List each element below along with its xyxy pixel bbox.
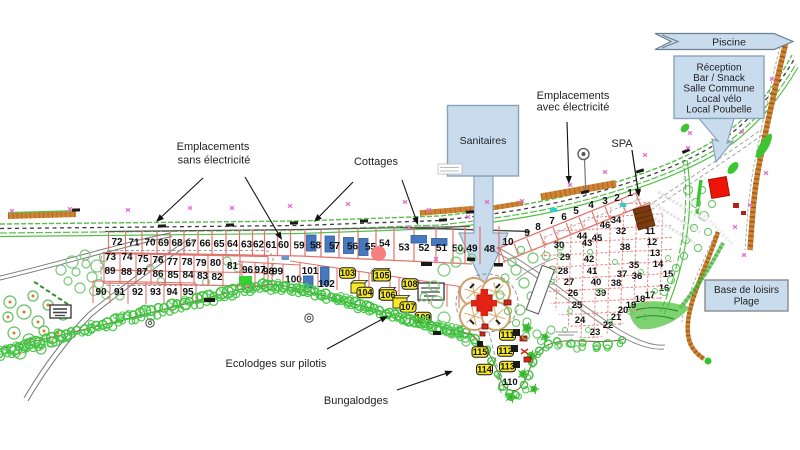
svg-text:73: 73	[105, 252, 117, 263]
svg-text:7: 7	[549, 216, 555, 227]
svg-text:74: 74	[121, 252, 133, 263]
svg-text:27: 27	[564, 277, 575, 288]
svg-text:2: 2	[614, 193, 620, 204]
svg-text:SPA: SPA	[611, 138, 633, 150]
svg-text:88: 88	[121, 267, 133, 278]
svg-text:28: 28	[558, 266, 569, 277]
svg-text:68: 68	[171, 238, 183, 249]
svg-text:4: 4	[588, 200, 594, 211]
svg-text:78: 78	[181, 257, 193, 268]
svg-text:Plage: Plage	[734, 297, 760, 308]
svg-text:75: 75	[137, 254, 149, 265]
svg-text:105: 105	[374, 271, 389, 281]
svg-text:Emplacements: Emplacements	[537, 90, 610, 102]
svg-text:86: 86	[152, 269, 164, 280]
svg-text:93: 93	[150, 287, 162, 298]
svg-text:48: 48	[484, 244, 496, 255]
svg-text:35: 35	[629, 260, 640, 271]
svg-text:112: 112	[498, 346, 513, 356]
svg-text:107: 107	[400, 302, 415, 312]
svg-text:53: 53	[398, 242, 410, 253]
svg-text:Réception: Réception	[696, 63, 741, 74]
svg-text:76: 76	[152, 255, 164, 266]
svg-text:18: 18	[635, 294, 646, 305]
svg-text:Cottages: Cottages	[354, 156, 399, 168]
svg-text:51: 51	[436, 243, 448, 254]
svg-text:12: 12	[647, 237, 658, 248]
svg-text:5: 5	[573, 206, 579, 217]
svg-text:81: 81	[227, 261, 239, 272]
svg-text:82: 82	[211, 272, 223, 283]
svg-text:45: 45	[592, 233, 603, 244]
svg-text:36: 36	[632, 271, 643, 282]
svg-text:57: 57	[329, 241, 341, 252]
svg-text:103: 103	[340, 268, 355, 278]
svg-text:22: 22	[603, 320, 614, 331]
svg-text:Bungalodges: Bungalodges	[324, 395, 389, 407]
svg-text:101: 101	[302, 266, 319, 277]
svg-text:52: 52	[418, 243, 430, 254]
svg-text:59: 59	[293, 240, 305, 251]
svg-text:32: 32	[616, 226, 627, 237]
svg-text:43: 43	[582, 238, 593, 249]
svg-text:67: 67	[185, 238, 197, 249]
svg-text:3: 3	[602, 196, 608, 207]
svg-text:41: 41	[587, 266, 598, 277]
svg-text:115: 115	[473, 347, 488, 357]
svg-text:Piscine: Piscine	[712, 37, 746, 49]
svg-text:62: 62	[253, 240, 265, 251]
svg-text:Bar / Snack: Bar / Snack	[693, 73, 746, 84]
svg-text:30: 30	[554, 240, 565, 251]
svg-text:9: 9	[524, 228, 530, 239]
svg-text:77: 77	[167, 257, 179, 268]
svg-text:66: 66	[199, 239, 211, 250]
svg-text:80: 80	[210, 258, 222, 269]
svg-text:69: 69	[158, 238, 170, 249]
svg-text:110: 110	[502, 377, 517, 388]
svg-text:92: 92	[132, 287, 144, 298]
svg-text:83: 83	[197, 271, 209, 282]
svg-text:85: 85	[167, 270, 179, 281]
svg-text:102: 102	[318, 279, 335, 290]
svg-text:89: 89	[104, 266, 116, 277]
svg-text:79: 79	[195, 258, 207, 269]
svg-text:111: 111	[500, 330, 514, 340]
svg-text:61: 61	[265, 240, 277, 251]
svg-text:26: 26	[568, 288, 579, 299]
svg-text:10: 10	[502, 237, 514, 248]
svg-text:Sanitaires: Sanitaires	[460, 135, 507, 147]
svg-text:113: 113	[500, 362, 515, 372]
svg-text:sans électricité: sans électricité	[178, 155, 251, 167]
svg-text:13: 13	[650, 248, 661, 259]
svg-text:24: 24	[575, 315, 586, 326]
svg-text:60: 60	[278, 240, 290, 251]
svg-text:64: 64	[227, 239, 239, 250]
svg-text:96: 96	[242, 265, 254, 276]
svg-text:34: 34	[611, 215, 622, 226]
svg-text:65: 65	[213, 239, 225, 250]
svg-text:Local vélo: Local vélo	[696, 94, 741, 105]
svg-text:63: 63	[241, 239, 253, 250]
svg-text:25: 25	[572, 300, 583, 311]
svg-text:71: 71	[128, 237, 140, 248]
svg-text:70: 70	[144, 238, 156, 249]
svg-text:23: 23	[590, 327, 601, 338]
svg-text:90: 90	[95, 287, 107, 298]
svg-text:6: 6	[561, 212, 567, 223]
svg-text:46: 46	[600, 220, 611, 231]
svg-text:17: 17	[645, 290, 656, 301]
svg-text:58: 58	[310, 241, 322, 252]
svg-text:87: 87	[136, 267, 148, 278]
svg-text:91: 91	[114, 287, 126, 298]
svg-text:Emplacements: Emplacements	[177, 141, 250, 153]
svg-text:104: 104	[357, 288, 372, 298]
svg-text:114: 114	[477, 365, 492, 375]
svg-text:Salle Commune: Salle Commune	[683, 84, 755, 95]
svg-text:108: 108	[402, 279, 417, 289]
svg-text:8: 8	[535, 222, 541, 233]
svg-text:99: 99	[272, 267, 284, 278]
svg-text:84: 84	[182, 270, 194, 281]
svg-text:Base de loisirs: Base de loisirs	[714, 285, 779, 296]
svg-text:38: 38	[620, 242, 631, 253]
svg-text:56: 56	[347, 241, 359, 252]
svg-text:42: 42	[584, 254, 595, 265]
svg-text:avec électricité: avec électricité	[537, 102, 610, 114]
svg-text:Ecolodges sur pilotis: Ecolodges sur pilotis	[226, 358, 327, 370]
svg-text:Local Poubelle: Local Poubelle	[686, 105, 752, 116]
svg-text:1: 1	[627, 188, 633, 199]
svg-text:72: 72	[111, 237, 123, 248]
svg-text:94: 94	[166, 287, 178, 298]
svg-text:38: 38	[611, 278, 622, 289]
svg-text:49: 49	[466, 244, 478, 255]
svg-text:40: 40	[591, 277, 602, 288]
